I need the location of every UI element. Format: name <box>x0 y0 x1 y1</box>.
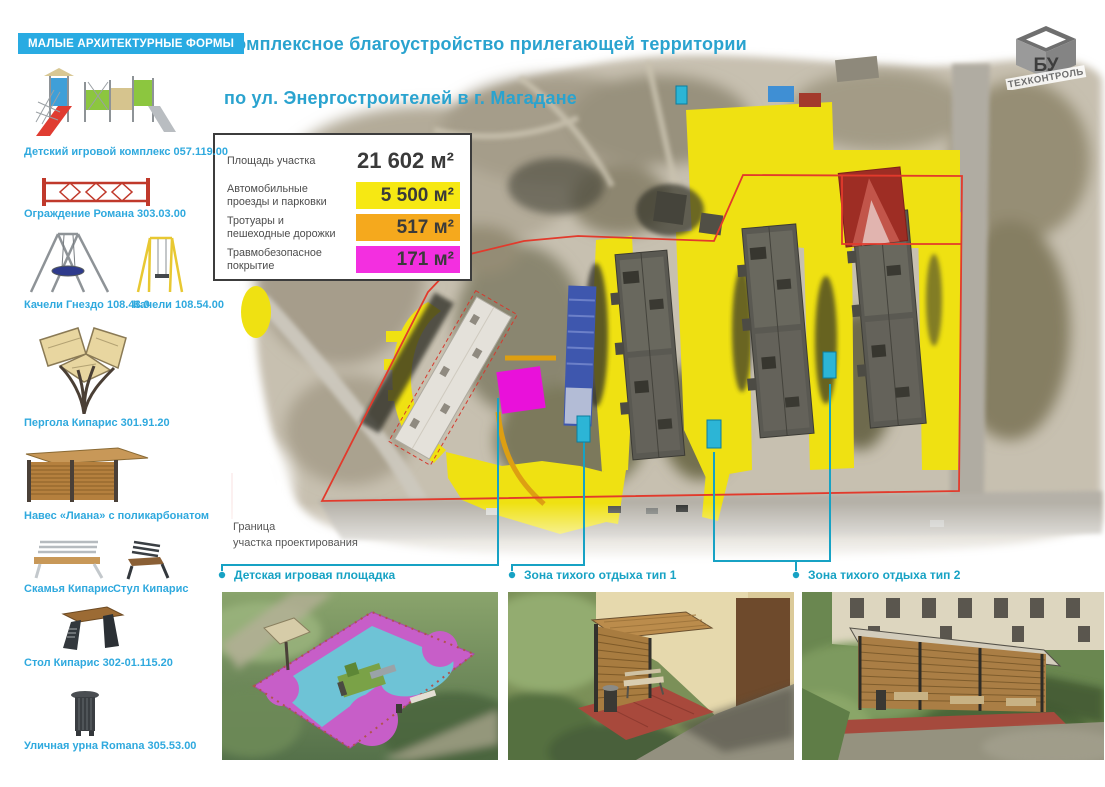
table-image <box>55 604 127 659</box>
render-quiet-zone-2 <box>802 592 1104 760</box>
sidebar-item-table: Стол Кипарис 302-01.115.20 <box>24 657 173 670</box>
fence-image <box>40 178 152 211</box>
legend-row-walkways: Тротуары и пешеходные дорожки 517 м² <box>227 214 460 241</box>
building-red-roof <box>838 167 907 247</box>
legend-row-driveways: Автомобильные проезды и парковки 5 500 м… <box>227 182 460 209</box>
page-title-line1: Комплексное благоустройство прилегающей … <box>224 34 747 55</box>
legend: Площадь участка 21 602 м² Автомобильные … <box>213 133 472 281</box>
render-quiet-zone-1 <box>508 592 794 760</box>
legend-value-safety-surface: 171 м² <box>356 246 460 273</box>
sidebar-header: МАЛЫЕ АРХИТЕКТУРНЫЕ ФОРМЫ <box>18 33 244 54</box>
safety-surface-area <box>496 366 545 414</box>
legend-value-driveways: 5 500 м² <box>356 182 460 209</box>
presentation-board: { "header": { "title_line1": "Комплексно… <box>0 0 1105 787</box>
sidebar-item-bench: Скамья Кипарис <box>24 583 114 596</box>
building-blue-roof <box>564 286 597 427</box>
callout-quiet-zone-1: Зона тихого отдыха тип 1 <box>524 568 676 582</box>
legend-label: Тротуары и пешеходные дорожки <box>227 215 350 241</box>
pergola-image <box>34 326 130 419</box>
legend-label: Автомобильные проезды и парковки <box>227 183 350 209</box>
boundary-label-line2: участка проектирования <box>233 536 358 552</box>
sidebar-item-pergola: Пергола Кипарис 301.91.20 <box>24 417 170 430</box>
legend-label: Площадь участка <box>227 155 350 168</box>
legend-value-walkways: 517 м² <box>356 214 460 241</box>
sidebar-item-swing: Качели 108.54.00 <box>133 299 224 312</box>
sidebar-item-nest-swing: Качели Гнездо 108.43.0 <box>24 299 150 312</box>
render-playground <box>222 592 498 760</box>
sidebar-item-fence: Ограждение Романа 303.03.00 <box>24 208 186 221</box>
sidebar-item-chair: Стул Кипарис <box>113 583 188 596</box>
swing-image <box>132 230 190 301</box>
bench-image <box>26 538 112 585</box>
legend-value-site-area: 21 602 м² <box>356 145 460 177</box>
callout-playground: Детская игровая площадка <box>234 568 395 582</box>
urn <box>876 690 886 710</box>
legend-row-safety-surface: Травмобезопасное покрытие 171 м² <box>227 246 460 273</box>
boundary-label-line1: Граница <box>233 520 358 536</box>
callout-quiet-zone-2: Зона тихого отдыха тип 2 <box>808 568 960 582</box>
logo-cube-icon: БУ ТЕХКОНТРОЛЬ <box>1004 24 1088 90</box>
page-title-line2: по ул. Энергостроителей в г. Магадане <box>224 88 577 109</box>
chair-image <box>118 540 174 585</box>
canopy-image <box>18 446 152 511</box>
boundary-label: Граница участка проектирования <box>233 520 358 552</box>
nest-swing-image <box>26 228 114 301</box>
urn-image <box>70 690 100 743</box>
sidebar-item-canopy: Навес «Лиана» с поликарбонатом <box>24 510 209 523</box>
legend-label: Травмобезопасное покрытие <box>227 247 350 273</box>
legend-row-site-area: Площадь участка 21 602 м² <box>227 145 460 177</box>
urn <box>604 688 617 712</box>
logo: БУ ТЕХКОНТРОЛЬ <box>1004 24 1088 95</box>
play-complex-image <box>30 60 180 149</box>
sidebar-item-urn: Уличная урна Romana 305.53.00 <box>24 740 196 753</box>
sidebar-item-play-complex: Детский игровой комплекс 057.119.00 <box>24 146 228 159</box>
